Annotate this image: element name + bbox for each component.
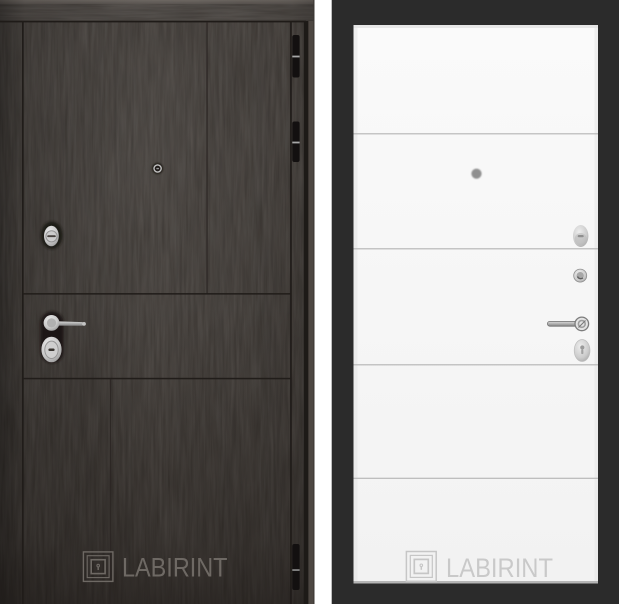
- svg-text:LABIRINT: LABIRINT: [122, 553, 228, 583]
- svg-text:LABIRINT: LABIRINT: [446, 553, 553, 583]
